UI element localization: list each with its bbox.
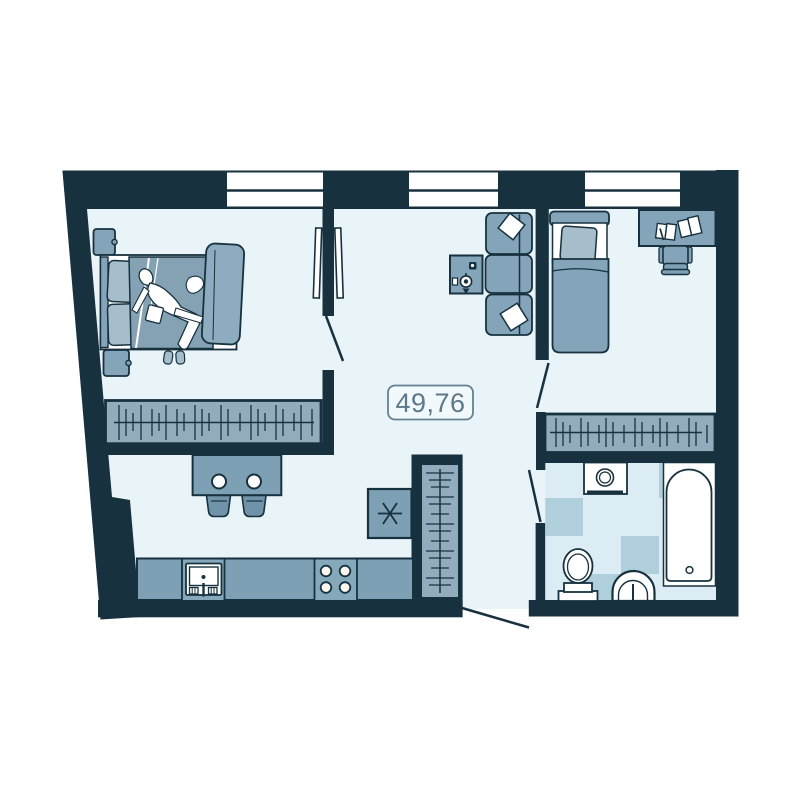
svg-text:49,76: 49,76 — [395, 388, 465, 418]
